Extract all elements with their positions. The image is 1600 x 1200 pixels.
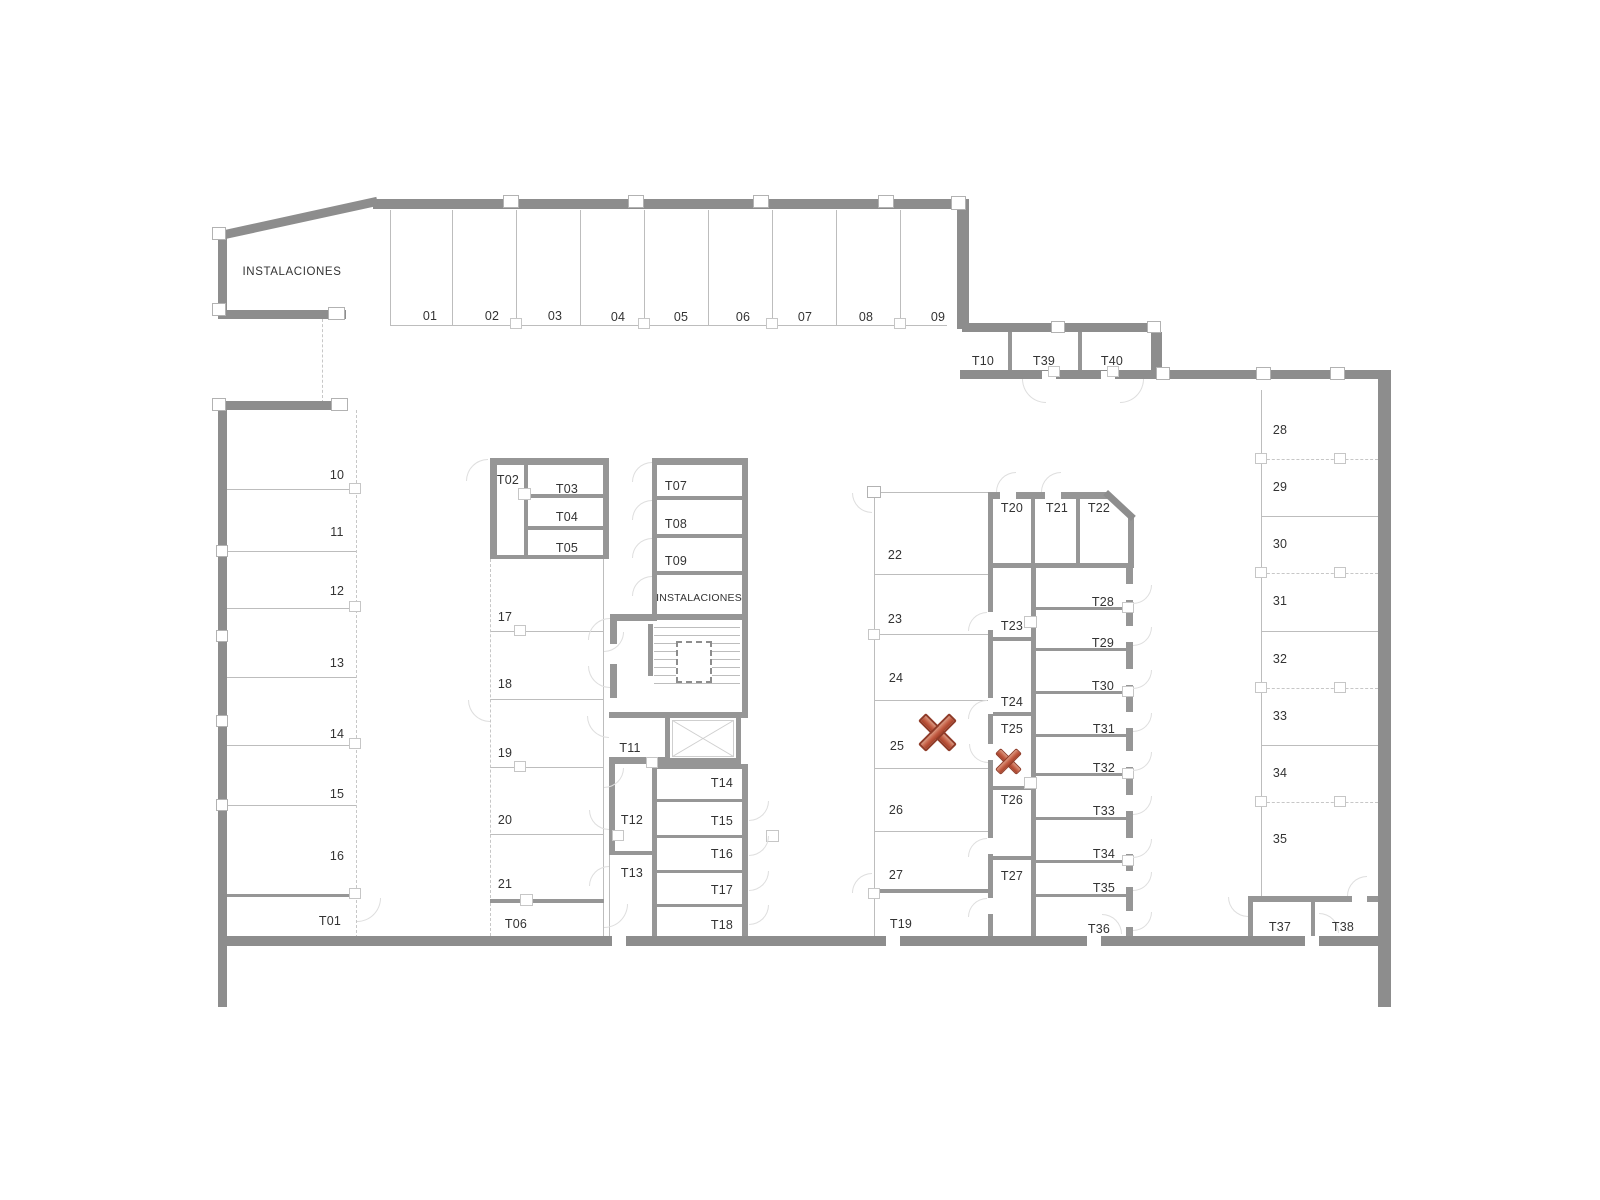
structural-wall (960, 370, 1390, 379)
room-label-T14: T14 (711, 776, 733, 790)
pillar-marker (328, 307, 345, 320)
room-label-16: 16 (330, 849, 344, 863)
door-threshold-marker (520, 894, 533, 906)
room-label-T29: T29 (1092, 636, 1114, 650)
pillar-marker (951, 196, 966, 210)
partition-wall (988, 497, 993, 936)
pillar-marker (216, 545, 228, 557)
door-swing-arc (968, 838, 987, 857)
door-threshold-marker (612, 830, 624, 841)
room-label-28: 28 (1273, 423, 1287, 437)
door-threshold-marker (1334, 453, 1346, 464)
partition-wall (657, 904, 742, 907)
room-label-09: 09 (931, 310, 945, 324)
room-label-21: 21 (498, 877, 512, 891)
pillar-marker (753, 195, 769, 208)
door-swing-arc (852, 873, 872, 893)
wall-opening (1126, 669, 1133, 685)
room-label-22: 22 (888, 548, 902, 562)
door-swing-arc (1133, 912, 1152, 931)
door-swing-arc (632, 500, 652, 520)
room-label-T21: T21 (1046, 501, 1068, 515)
diagonal-wall (220, 197, 378, 240)
wall-opening (1126, 751, 1133, 767)
partition-wall (1128, 515, 1134, 567)
room-label-T12: T12 (621, 813, 643, 827)
partition-wall (227, 894, 356, 897)
room-label-T13: T13 (621, 866, 643, 880)
boundary-line (874, 492, 875, 892)
door-swing-arc (587, 716, 609, 738)
door-threshold-marker (349, 738, 361, 749)
x-marker-small (997, 750, 1020, 773)
structural-wall (218, 401, 227, 1007)
door-threshold-marker (514, 761, 526, 772)
boundary-line (227, 551, 356, 552)
partition-wall (490, 555, 607, 559)
room-label-T03: T03 (556, 482, 578, 496)
pillar-marker (212, 227, 226, 240)
boundary-line (390, 210, 391, 326)
floor-plan: INSTALACIONES010203040506070809T10T39T40… (0, 0, 1600, 1200)
door-swing-arc (749, 801, 769, 821)
room-label-35: 35 (1273, 832, 1287, 846)
partition-wall (657, 870, 742, 873)
room-label-18: 18 (498, 677, 512, 691)
boundary-line (1262, 745, 1378, 746)
boundary-line (708, 210, 709, 325)
door-swing-arc (749, 836, 769, 856)
partition-wall (1076, 499, 1080, 563)
room-label-26: 26 (889, 803, 903, 817)
door-swing-arc (1228, 897, 1248, 917)
door-swing-arc (1133, 627, 1152, 646)
x-marker-large (921, 716, 954, 749)
door-threshold-marker (1334, 796, 1346, 807)
boundary-line (875, 634, 988, 635)
pillar-marker (212, 398, 226, 411)
wall-opening (988, 698, 993, 714)
door-swing-arc (604, 768, 624, 788)
boundary-line (1261, 390, 1262, 898)
room-label-07: 07 (798, 310, 812, 324)
boundary-line (490, 834, 603, 835)
room-label-T20: T20 (1001, 501, 1023, 515)
door-swing-arc (1133, 872, 1152, 891)
boundary-line (490, 631, 603, 632)
wall-opening (988, 612, 993, 630)
door-swing-arc (749, 905, 769, 925)
door-swing-arc (1347, 876, 1367, 896)
room-label-31: 31 (1273, 594, 1287, 608)
door-threshold-marker (1255, 796, 1267, 807)
door-threshold-marker (518, 488, 531, 500)
room-label-03: 03 (548, 309, 562, 323)
room-label-T02: T02 (497, 473, 519, 487)
dashed-boundary (490, 903, 491, 936)
door-swing-arc (1133, 585, 1152, 604)
wall-opening (1126, 871, 1133, 887)
pillar-marker (216, 630, 228, 642)
door-swing-arc (968, 612, 987, 631)
boundary-line (654, 627, 740, 628)
partition-wall (652, 534, 742, 538)
door-threshold-marker (514, 625, 526, 636)
door-swing-arc (1041, 472, 1061, 492)
room-label-T37: T37 (1269, 920, 1291, 934)
door-swing-arc (588, 666, 610, 688)
partition-wall (490, 458, 607, 465)
dashed-boundary (490, 559, 491, 903)
boundary-line (580, 210, 581, 325)
partition-wall (1311, 902, 1315, 936)
partition-wall (988, 563, 1134, 568)
door-threshold-marker (868, 629, 880, 640)
structural-wall (373, 199, 957, 209)
door-swing-arc (468, 700, 490, 722)
door-threshold-marker (894, 318, 906, 329)
elevator-shaft-icon (671, 719, 735, 759)
room-label-T17: T17 (711, 883, 733, 897)
structural-wall (218, 310, 346, 319)
door-swing-arc (996, 472, 1016, 492)
room-label-T23: T23 (1001, 619, 1023, 633)
room-label-15: 15 (330, 787, 344, 801)
door-swing-arc (604, 904, 628, 928)
pillar-marker (216, 799, 228, 811)
room-label-02: 02 (485, 309, 499, 323)
pillar-marker (1256, 367, 1271, 380)
door-swing-arc (852, 493, 872, 513)
boundary-line (875, 768, 988, 769)
room-label-T25: T25 (1001, 722, 1023, 736)
room-label-T16: T16 (711, 847, 733, 861)
door-swing-arc (1133, 839, 1152, 858)
door-swing-arc (1133, 713, 1152, 732)
partition-wall (1008, 332, 1012, 372)
wall-opening (612, 936, 626, 946)
partition-wall (988, 712, 1036, 716)
pillar-marker (331, 398, 348, 411)
room-label-T06: T06 (505, 917, 527, 931)
boundary-line (227, 805, 356, 806)
wall-opening (1126, 838, 1133, 854)
room-label-T07: T07 (665, 479, 687, 493)
wall-opening (1126, 712, 1133, 728)
partition-wall (603, 458, 609, 559)
door-threshold-marker (1024, 777, 1037, 789)
room-label-T26: T26 (1001, 793, 1023, 807)
door-threshold-marker (349, 483, 361, 494)
boundary-line (1262, 631, 1378, 632)
room-label-29: 29 (1273, 480, 1287, 494)
boundary-line (874, 492, 990, 493)
door-threshold-marker (766, 318, 778, 329)
room-label-34: 34 (1273, 766, 1287, 780)
dashed-boundary (322, 319, 323, 403)
room-label-04: 04 (611, 310, 625, 324)
door-swing-arc (968, 898, 987, 917)
door-swing-arc (1133, 670, 1152, 689)
boundary-line (654, 683, 740, 684)
pillar-marker (1051, 321, 1065, 333)
partition-wall (1078, 332, 1082, 372)
partition-wall (652, 571, 742, 575)
door-swing-arc (357, 898, 381, 922)
room-label-14: 14 (330, 727, 344, 741)
room-label-20: 20 (498, 813, 512, 827)
door-threshold-marker (1024, 616, 1037, 628)
wall-opening (1087, 936, 1101, 946)
boundary-line (772, 210, 773, 325)
room-label-06: 06 (736, 310, 750, 324)
door-swing-arc (589, 810, 609, 830)
wall-opening (886, 936, 900, 946)
boundary-line (490, 767, 603, 768)
room-label-T28: T28 (1092, 595, 1114, 609)
pillar-marker (216, 715, 228, 727)
room-label-33: 33 (1273, 709, 1287, 723)
boundary-line (516, 210, 517, 325)
installations-label: INSTALACIONES (656, 592, 742, 604)
boundary-line (227, 745, 356, 746)
room-label-T09: T09 (665, 554, 687, 568)
dashed-divider (1262, 459, 1378, 460)
dashed-divider (1262, 688, 1378, 689)
partition-wall (988, 637, 1036, 641)
room-label-T32: T32 (1093, 761, 1115, 775)
structural-wall (1378, 370, 1391, 1007)
partition-wall (524, 464, 528, 559)
boundary-line (1262, 516, 1378, 517)
boundary-line (452, 210, 453, 325)
partition-wall (988, 856, 1036, 860)
door-swing-arc (632, 462, 652, 482)
boundary-line (227, 608, 356, 609)
room-label-13: 13 (330, 656, 344, 670)
door-threshold-marker (349, 601, 361, 612)
door-swing-arc (749, 871, 769, 891)
dashed-divider (1262, 802, 1378, 803)
door-swing-arc (466, 459, 488, 481)
room-label-25: 25 (890, 739, 904, 753)
room-label-T38: T38 (1332, 920, 1354, 934)
room-label-T15: T15 (711, 814, 733, 828)
partition-wall (657, 835, 742, 838)
pillar-marker (212, 303, 226, 316)
door-swing-arc (589, 866, 609, 886)
partition-wall (609, 851, 654, 855)
boundary-line (875, 700, 988, 701)
room-label-T35: T35 (1093, 881, 1115, 895)
installations-label: INSTALACIONES (243, 266, 342, 278)
door-swing-arc (1133, 752, 1152, 771)
room-label-T34: T34 (1093, 847, 1115, 861)
pillar-marker (1147, 321, 1161, 333)
room-label-T31: T31 (1093, 722, 1115, 736)
room-label-T36: T36 (1088, 922, 1110, 936)
door-swing-arc (632, 576, 652, 596)
door-threshold-marker (1255, 453, 1267, 464)
room-label-T24: T24 (1001, 695, 1023, 709)
boundary-line (900, 210, 901, 325)
room-label-17: 17 (498, 610, 512, 624)
partition-wall (652, 764, 657, 936)
room-label-T39: T39 (1033, 354, 1055, 368)
partition-wall (652, 458, 747, 465)
room-label-12: 12 (330, 584, 344, 598)
partition-wall (652, 764, 748, 769)
boundary-line (227, 677, 356, 678)
room-label-32: 32 (1273, 652, 1287, 666)
door-swing-arc (969, 744, 988, 763)
structural-wall (218, 936, 1390, 946)
partition-wall (617, 614, 657, 621)
boundary-line (875, 574, 988, 575)
room-label-19: 19 (498, 746, 512, 760)
room-label-T08: T08 (665, 517, 687, 531)
partition-wall (1031, 499, 1035, 563)
room-label-T33: T33 (1093, 804, 1115, 818)
door-swing-arc (1133, 796, 1152, 815)
room-label-27: 27 (889, 868, 903, 882)
boundary-line (227, 489, 356, 490)
door-threshold-marker (1334, 682, 1346, 693)
room-label-T11: T11 (619, 741, 640, 755)
door-threshold-marker (638, 318, 650, 329)
boundary-line (644, 210, 645, 325)
partition-wall (742, 458, 748, 620)
door-threshold-marker (510, 318, 522, 329)
boundary-line (390, 325, 947, 326)
partition-wall (609, 712, 748, 718)
wall-opening (1045, 492, 1061, 499)
wall-opening (988, 838, 993, 854)
pillar-marker (878, 195, 894, 208)
room-label-T40: T40 (1101, 354, 1123, 368)
wall-opening (988, 744, 993, 760)
stair-well-dashed-outline (676, 641, 712, 683)
partition-wall (874, 889, 990, 893)
partition-wall (528, 526, 605, 530)
door-threshold-marker (1334, 567, 1346, 578)
door-threshold-marker (1255, 682, 1267, 693)
dashed-divider (1262, 573, 1378, 574)
room-label-01: 01 (423, 309, 437, 323)
room-label-T04: T04 (556, 510, 578, 524)
boundary-line (875, 831, 988, 832)
door-threshold-marker (1255, 567, 1267, 578)
boundary-line (836, 210, 837, 325)
partition-wall (652, 496, 742, 500)
boundary-line (874, 893, 875, 936)
partition-wall (742, 614, 748, 716)
wall-opening (1352, 896, 1367, 902)
room-label-08: 08 (859, 310, 873, 324)
room-label-24: 24 (889, 671, 903, 685)
pillar-marker (503, 195, 519, 208)
boundary-line (654, 635, 740, 636)
room-label-T30: T30 (1092, 679, 1114, 693)
wall-opening (988, 898, 993, 914)
room-label-T27: T27 (1001, 869, 1023, 883)
room-label-T18: T18 (711, 918, 733, 932)
structural-wall (218, 401, 348, 410)
pillar-marker (1156, 367, 1170, 380)
wall-opening (1305, 936, 1319, 946)
partition-wall (657, 799, 742, 802)
pillar-marker (628, 195, 644, 208)
room-label-23: 23 (888, 612, 902, 626)
door-threshold-marker (646, 757, 658, 768)
wall-opening (1126, 584, 1133, 600)
door-swing-arc (632, 538, 652, 558)
partition-wall (652, 614, 747, 620)
structural-wall (957, 199, 969, 329)
room-label-T05: T05 (556, 541, 578, 555)
room-label-T22: T22 (1088, 501, 1110, 515)
room-label-T01: T01 (319, 914, 341, 928)
door-swing-arc (1120, 379, 1144, 403)
wall-opening (1126, 626, 1133, 642)
room-label-T19: T19 (890, 917, 912, 931)
door-swing-arc (968, 700, 987, 719)
wall-opening (1000, 492, 1016, 499)
partition-wall (1248, 896, 1253, 936)
wall-opening (1126, 911, 1133, 927)
door-swing-arc (588, 618, 610, 640)
boundary-line (490, 699, 603, 700)
room-label-T10: T10 (972, 354, 994, 368)
partition-wall (742, 764, 748, 936)
wall-opening (1126, 795, 1133, 811)
room-label-05: 05 (674, 310, 688, 324)
pillar-marker (1330, 367, 1345, 380)
room-label-10: 10 (330, 468, 344, 482)
partition-wall (490, 899, 604, 903)
partition-wall (648, 624, 653, 676)
door-swing-arc (1022, 379, 1046, 403)
room-label-30: 30 (1273, 537, 1287, 551)
partition-wall (610, 664, 617, 698)
partition-wall (609, 757, 669, 764)
room-label-11: 11 (330, 525, 343, 539)
